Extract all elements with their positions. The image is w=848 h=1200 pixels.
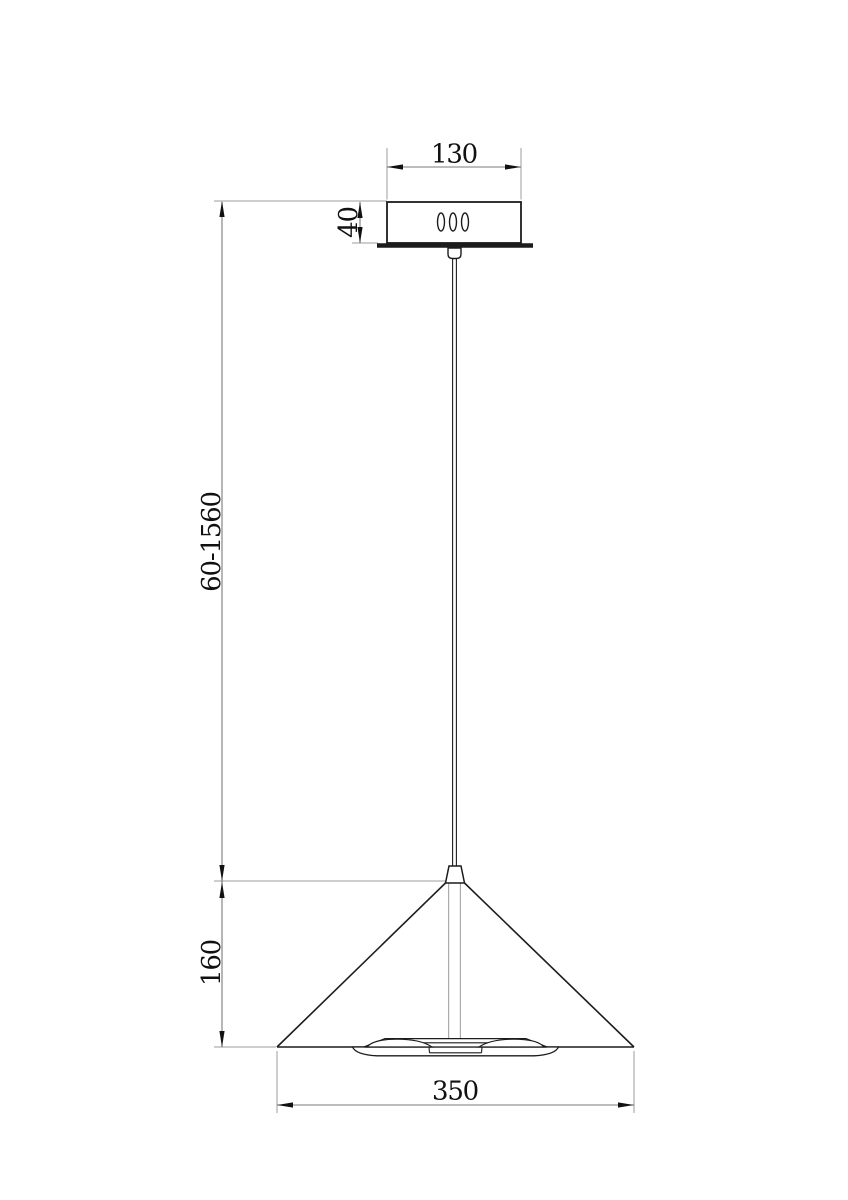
dim-suspension-length: 60-1560 (197, 201, 227, 881)
canopy-body (387, 202, 521, 243)
diffuser-center-left-edge (429, 1047, 430, 1053)
technical-drawing-canvas: 130 40 60-1560 160 350 (0, 0, 848, 1200)
arrowhead-left (387, 164, 403, 169)
arrowhead-left (277, 1102, 293, 1107)
led-diffuser (353, 1039, 559, 1056)
dim-label-canopy-width: 130 (431, 140, 477, 170)
arrowhead-up (219, 201, 224, 217)
cable-grip-top (448, 248, 461, 259)
dim-canopy-height: 40 (334, 202, 364, 243)
arrowhead-up (219, 882, 224, 898)
diffuser-outer-dish (353, 1047, 559, 1056)
dim-label-shade-diameter: 350 (432, 1077, 478, 1107)
arrowhead-right (618, 1102, 634, 1107)
dim-shade-height: 160 (197, 881, 227, 1047)
cable-grip-shade (446, 866, 465, 883)
extension-lines (214, 148, 634, 1113)
dim-label-suspension-length: 60-1560 (197, 492, 227, 592)
shade-cone (277, 866, 634, 1047)
arrowhead-down (219, 865, 224, 881)
dim-label-canopy-height: 40 (334, 207, 364, 238)
dim-label-shade-height: 160 (197, 940, 227, 986)
cone-left-slope (277, 883, 446, 1047)
suspension-cable (453, 259, 457, 867)
arrowhead-right (505, 164, 521, 169)
diffuser-center-right-edge (482, 1047, 483, 1053)
dim-canopy-width: 130 (387, 140, 521, 170)
ceiling-canopy (377, 202, 533, 259)
dim-shade-diameter: 350 (277, 1077, 634, 1108)
cone-right-slope (465, 883, 635, 1047)
arrowhead-down (219, 1031, 224, 1047)
